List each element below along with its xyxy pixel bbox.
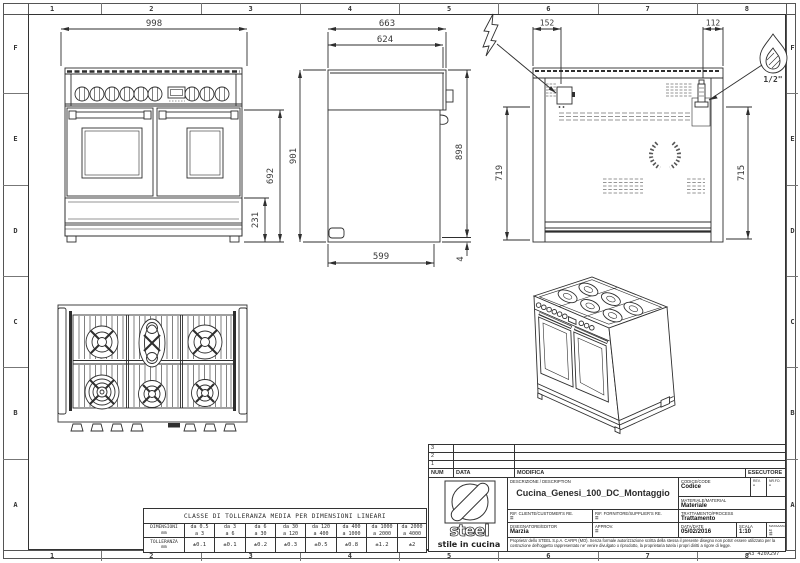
tolerance-value: ±1.2 [366, 537, 398, 553]
svg-text:663: 663 [379, 19, 395, 29]
side-view-drawing: 663 624 901 898 [290, 16, 485, 278]
side-body [328, 70, 453, 242]
code-cell: CODICE/CODE Codice [678, 477, 751, 497]
svg-text:719: 719 [495, 165, 505, 181]
grid-col-label: 1 [3, 551, 102, 561]
dim-base-599: 599 [328, 244, 434, 267]
rev-cell: REV. - [750, 477, 767, 497]
svg-text:624: 624 [377, 35, 393, 45]
description-label: DESCRIZIONE / DESCRIPTION [508, 478, 678, 484]
dim-plinth-231: 231 [244, 198, 269, 242]
approval-cell: APPROV. = [592, 522, 679, 538]
scale-value: 1:10 [737, 529, 766, 535]
customer-ref-cell: RIF. CLIENTE/CUSTOMER'S RE. = [507, 509, 593, 523]
grid-row-label: A [787, 460, 798, 550]
approval-value: = [593, 529, 678, 535]
grid-col-label: 3 [202, 3, 301, 14]
svg-text:4: 4 [456, 256, 466, 261]
tolerance-value: ±0.5 [305, 537, 337, 553]
code-value: Codice [679, 484, 750, 490]
svg-text:152: 152 [540, 19, 555, 28]
dim-unit-text: mm [161, 531, 167, 537]
top-view-knobs [71, 423, 236, 431]
dim-range: da 120a 400 [305, 523, 337, 538]
tolerance-value: ±2 [397, 537, 427, 553]
front-body [65, 68, 242, 242]
dim-range: da 0.5a 3 [184, 523, 215, 538]
grid-row-label: B [3, 368, 28, 459]
iso-right-face [609, 307, 675, 430]
mass-cell: MASSA/MASS kg = [766, 522, 786, 538]
svg-text:231: 231 [251, 212, 261, 228]
grid-row-label: D [3, 186, 28, 277]
mass-label: MASSA/MASS kg [767, 523, 785, 532]
svg-text:715: 715 [737, 165, 747, 181]
burner-center-oval [139, 319, 165, 367]
svg-text:898: 898 [455, 144, 465, 160]
dim-foot-4: 4 [442, 224, 471, 262]
logo-tagline: stile in cucina [438, 540, 501, 549]
burner-right-top [188, 325, 222, 359]
grid-ref-left: F E D C B A [3, 3, 29, 550]
dim-depth-624: 624 [328, 35, 443, 68]
drawing-sheet: 1 2 3 4 5 6 7 8 1 2 3 4 5 6 7 8 F E D C … [0, 0, 800, 563]
svg-text:1/2": 1/2" [763, 75, 782, 84]
grid-row-label: C [787, 277, 798, 368]
grid-row-label: B [787, 368, 798, 459]
tolerance-value: ±0.1 [214, 537, 246, 553]
control-knobs [75, 87, 229, 101]
tolerance-dim-label: DIMENSIONI mm [143, 523, 185, 538]
tolerance-value: ±0.8 [336, 537, 367, 553]
steel-logo: steel stile in cucina [428, 477, 508, 552]
back-view-drawing: 152 112 719 715 [480, 10, 800, 263]
dim-range: da 30a 120 [275, 523, 306, 538]
description-cell: DESCRIZIONE / DESCRIPTION Cucina_Genesi_… [507, 477, 679, 510]
svg-text:901: 901 [289, 148, 299, 164]
dim-elec-height-719: 719 [495, 107, 530, 240]
dim-body-height-692: 692 [244, 110, 284, 242]
grid-row-label: C [3, 277, 28, 368]
grid-col-label: 8 [698, 551, 796, 561]
grid-row-label: E [3, 94, 28, 185]
tolerance-value: ±0.2 [245, 537, 276, 553]
grid-row-label: F [3, 3, 28, 94]
grid-col-label: 2 [102, 3, 201, 14]
dim-range: da 400a 1000 [336, 523, 367, 538]
material-cell: MATERIALE/MATERIAL Materiale [678, 496, 786, 510]
editor-value: Marzia [508, 529, 592, 535]
date-cell: DATA/DATE 05/02/2016 [678, 522, 737, 538]
svg-text:599: 599 [373, 252, 389, 262]
supplier-ref-cell: RIF. FORNITORE/SUPPLIER'S RE. = [592, 509, 679, 523]
grid-col-label: 7 [599, 551, 698, 561]
grid-col-label: 6 [499, 551, 598, 561]
date-value: 05/02/2016 [679, 529, 736, 535]
burner-right-bottom [192, 380, 219, 407]
svg-text:692: 692 [266, 168, 276, 184]
dim-range: da 2000a 4000 [397, 523, 427, 538]
editor-cell: DISEGNATORE/EDITOR Marzia [507, 522, 593, 538]
svg-text:998: 998 [146, 19, 162, 29]
grid-col-label: 4 [301, 3, 400, 14]
burner-left-bottom-wok [85, 375, 119, 409]
process-cell: TRATTAMENTO/PROCESS Trattamento [678, 509, 786, 523]
front-view-drawing: 998 [40, 16, 290, 256]
dim-width-998: 998 [61, 19, 247, 66]
tolerance-tol-label: TOLLERANZA mm [143, 537, 185, 553]
dim-gas-height-715: 715 [726, 107, 752, 239]
isometric-view-drawing [520, 268, 700, 438]
scale-cell: SCALA 1:10 [736, 522, 767, 538]
rev-value: - [751, 483, 766, 489]
dim-range: da 3a 6 [214, 523, 246, 538]
dim-height-901: 901 [289, 70, 326, 242]
tolerance-title: CLASSE DI TOLLERANZA MEDIA PER DIMENSION… [143, 508, 427, 524]
grid-row-label: A [3, 460, 28, 550]
title-block: 3 2 1 NUM DATA MODIFICA ESECUTORE steel … [428, 444, 786, 552]
tolerance-table: CLASSE DI TOLLERANZA MEDIA PER DIMENSION… [143, 508, 427, 553]
tolerance-value: ±0.1 [184, 537, 215, 553]
drawing-title: Cucina_Genesi_100_DC_Montaggio [508, 488, 678, 498]
legal-notice: Proprieta' dello STEEL S.p.A. CARPI (MO)… [507, 537, 786, 552]
tol-unit-text: mm [161, 545, 167, 551]
burner-left-top [86, 326, 118, 358]
dim-range: da 1000a 2000 [366, 523, 398, 538]
burner-center-bottom [139, 381, 166, 408]
top-view-drawing [50, 295, 260, 440]
svg-text:112: 112 [706, 19, 721, 28]
logo-name: steel [449, 521, 489, 540]
sheet-no-cell: NR.FO. - [766, 477, 786, 497]
sheet-no-value: - [767, 483, 785, 489]
dim-range: da 6a 30 [245, 523, 276, 538]
tolerance-value: ±0.3 [275, 537, 306, 553]
